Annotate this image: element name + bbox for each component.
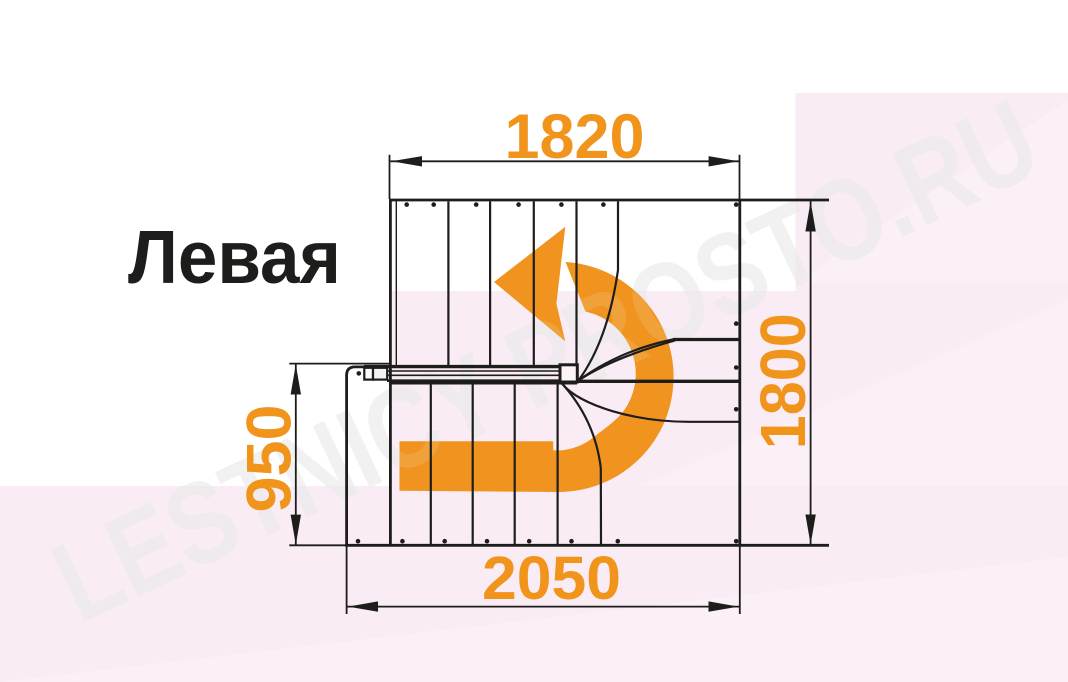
svg-text:1820: 1820	[505, 102, 645, 172]
svg-text:2050: 2050	[482, 544, 621, 612]
svg-text:Левая: Левая	[128, 215, 341, 299]
svg-text:950: 950	[235, 405, 305, 513]
svg-text:1800: 1800	[747, 313, 819, 449]
